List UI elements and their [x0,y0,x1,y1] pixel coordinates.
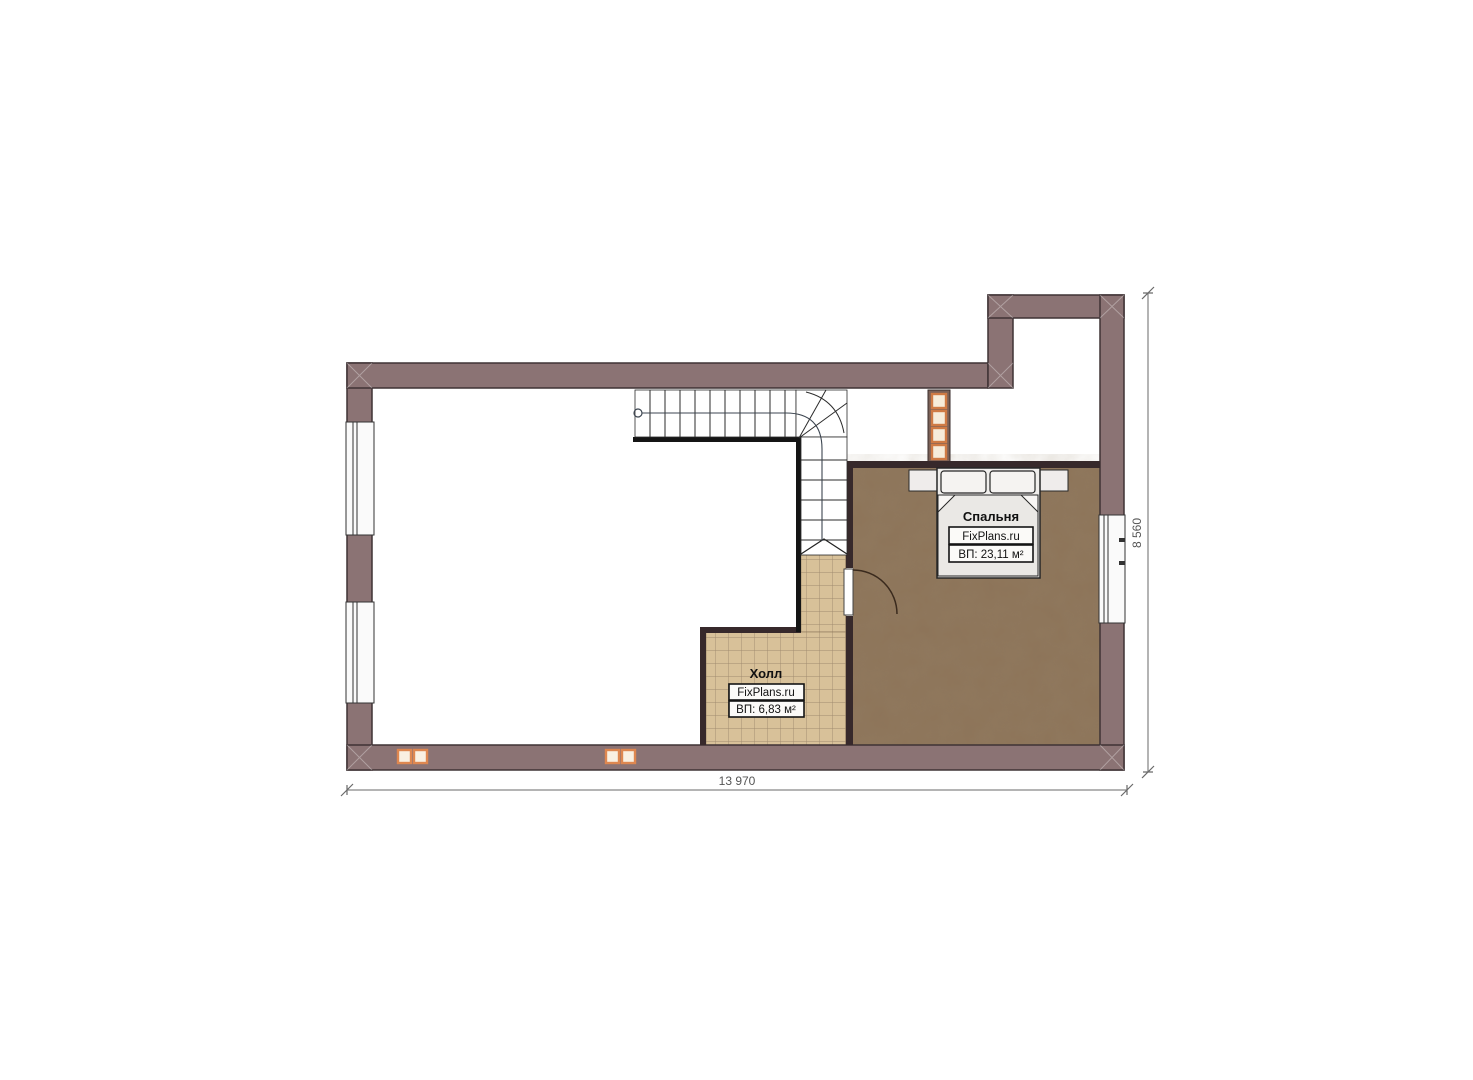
partition-bedroom-top [853,461,1100,468]
staircase [634,390,847,555]
nightstand-right [1040,470,1068,491]
pillow-right [990,471,1035,493]
floor-plan-page: Спальня FixPlans.ru ВП: 23,11 м² Холл Fi… [0,0,1473,1080]
chimney-flue-wall [928,390,950,462]
pillow-left [941,471,986,493]
vent-square [606,750,619,763]
door-leaf [844,569,853,615]
hall-area-label: ВП: 6,83 м² [736,704,796,716]
left-window-upper [346,422,374,535]
bedroom-area-label: ВП: 23,11 м² [958,549,1023,561]
vent-square [414,750,427,763]
hall-title: Холл [750,666,783,681]
right-window [1099,515,1125,623]
floor-plan-canvas: Спальня FixPlans.ru ВП: 23,11 м² Холл Fi… [0,0,1473,1080]
vent-square [622,750,635,763]
bedroom-brand-label: FixPlans.ru [962,531,1020,543]
hall-brand-label: FixPlans.ru [737,687,795,699]
flue-opening [932,411,946,425]
top-wall [347,363,988,388]
stair-flight-vertical [801,437,847,555]
partition-hall-bedroom [846,616,853,745]
partition-hall-left [700,627,706,745]
vent-square [398,750,411,763]
bedroom-title: Спальня [963,509,1019,524]
left-window-lower [346,602,374,703]
dimension-height: 8 560 [1130,287,1154,778]
dimension-width: 13 970 [341,774,1133,796]
nightstand-left [909,470,937,491]
bottom-wall [347,745,1124,770]
dimension-width-label: 13 970 [719,774,756,788]
dimension-height-label: 8 560 [1130,518,1144,548]
stair-string-edges [633,437,801,632]
flue-opening [932,394,946,408]
partition-hall-top [700,627,801,633]
flue-opening [932,428,946,442]
flue-opening [932,445,946,459]
